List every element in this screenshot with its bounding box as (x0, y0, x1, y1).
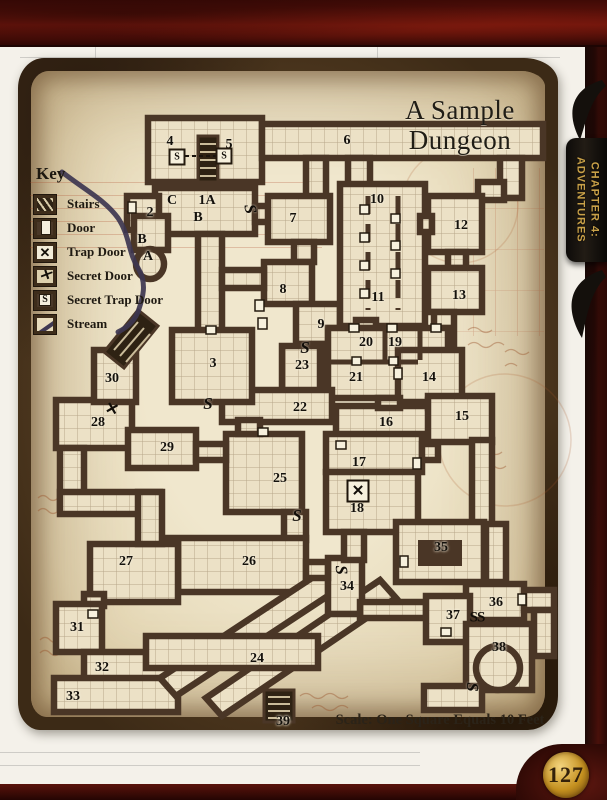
secret-door-icon: ✕ (34, 267, 56, 286)
key-item-label: Secret Door (67, 268, 133, 284)
key-item: Stairs (34, 192, 184, 216)
key-item: Stream (34, 312, 184, 336)
key-item-label: Door (67, 220, 95, 236)
map-title: A Sample Dungeon (372, 96, 548, 155)
key-heading: Key (36, 164, 184, 184)
key-item-label: Secret Trap Door (67, 292, 163, 308)
key-item-list: Stairs Door ✕ Trap Door ✕ Secret D (34, 192, 184, 336)
stream-icon (34, 315, 56, 334)
key-item: ✕ Secret Door (34, 264, 184, 288)
key-item-label: Stairs (67, 196, 100, 212)
map-scale-note: Scale: One Square Equals 10 Feet (330, 712, 550, 729)
page-number-medallion: 127 (543, 752, 589, 798)
key-item: S Secret Trap Door (34, 288, 184, 312)
page-number: 127 (548, 762, 584, 788)
map-key: Key Stairs Door ✕ Trap Door (34, 164, 184, 336)
key-item: Door (34, 216, 184, 240)
stairs-icon (34, 195, 56, 214)
chapter-tab-label: CHAPTER 4: ADVENTURES (573, 157, 601, 243)
key-item-label: Trap Door (67, 244, 126, 260)
binding-claw-ornament (556, 268, 607, 340)
secret-trap-door-icon: S (34, 291, 56, 310)
trap-door-icon: ✕ (34, 243, 56, 262)
chapter-tab: CHAPTER 4: ADVENTURES (566, 138, 607, 262)
door-icon (34, 219, 56, 238)
book-cover-top-edge (0, 0, 607, 47)
key-item: ✕ Trap Door (34, 240, 184, 264)
key-item-label: Stream (67, 316, 107, 332)
